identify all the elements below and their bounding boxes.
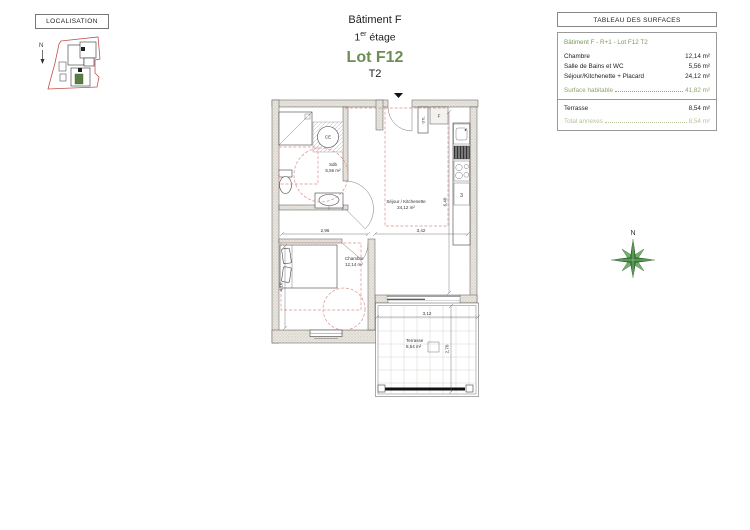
room-label-sejour: Séjour / Kitchenette (386, 199, 426, 204)
table-row: Salle de Bains et WC 5,56 m² (564, 63, 710, 70)
compass-north-label: N (630, 230, 635, 237)
plan-sheet: LOCALISATION N Bâtiment F 1er étage Lot … (0, 0, 750, 530)
railing-post (378, 385, 385, 392)
table-row-total-annexes: Total annexes 8,54 m² (564, 118, 710, 125)
chambre: Chambre 12,14 m² (280, 243, 365, 339)
railing-post (466, 385, 473, 392)
surface-table-title: TABLEAU DES SURFACES (557, 12, 717, 27)
room-label-terrasse: Terrasse (406, 338, 424, 343)
building-core (81, 47, 85, 51)
map-north-label: N (39, 43, 43, 49)
type-title: T2 (275, 68, 475, 80)
surface-table: Bâtiment F - R+1 - Lot F12 T2 Chambre 12… (557, 32, 717, 131)
room-area-sejour: 24,12 m² (397, 205, 415, 210)
building-title: Bâtiment F (275, 14, 475, 26)
dotted-leader (615, 91, 683, 92)
localisation-title: LOCALISATION (35, 14, 109, 29)
room-area-chambre: 12,14 m² (345, 262, 363, 267)
dim-terrasse-width: 3,12 (423, 311, 432, 316)
dotted-leader (605, 122, 687, 123)
table-row: Terrasse 8,54 m² (564, 105, 710, 112)
kitchen-counter (453, 123, 470, 245)
room-label-chambre: Chambre (345, 256, 364, 261)
compass-rose: N (609, 226, 657, 284)
highlighted-lot (75, 74, 83, 84)
building-outline (84, 58, 94, 66)
kitchen-placard-zone (385, 108, 448, 226)
building-core (78, 68, 82, 72)
dim-chambre-height: 4,10 (279, 282, 284, 291)
map-north-arrowhead (41, 59, 45, 64)
room-area-sdb: 5,56 m² (325, 168, 341, 173)
floor-plan: CE Sdb 5,56 m² GTL F (270, 90, 490, 400)
gtl-label: GTL (422, 117, 426, 124)
dim-sejour-height: 6,40 (443, 197, 448, 206)
table-row: Séjour/Kitchenette + Placard 24,12 m² (564, 73, 710, 80)
bathroom-door-swing (346, 181, 374, 229)
building-outline (60, 74, 66, 81)
sliding-door-icon (387, 295, 460, 301)
room-label-sdb: Sdb (329, 162, 338, 167)
kitchenette: 3 (453, 123, 470, 245)
table-row-habitable: Surface habitable 41,82 m² (564, 87, 710, 94)
washbasin-icon (319, 195, 339, 206)
dim-terrasse-height: 2,70 (445, 344, 450, 353)
dim-sejour-width: 3,42 (417, 228, 426, 233)
fridge-mark: 3 (460, 193, 463, 199)
title-block: Bâtiment F 1er étage Lot F12 T2 (275, 14, 475, 80)
table-divider (558, 99, 716, 100)
pillow-icon (281, 248, 291, 264)
entrance-door-swing (388, 107, 412, 131)
entrance-marker-icon (394, 93, 403, 98)
floor-title: 1er étage (275, 31, 475, 44)
f-label: F (438, 114, 441, 119)
lot-title: Lot F12 (275, 49, 475, 67)
bathroom: CE Sdb 5,56 m² (279, 112, 348, 210)
table-row: Chambre 12,14 m² (564, 53, 710, 60)
toilet-tank-icon (279, 170, 292, 177)
dim-chambre-width: 2,96 (321, 228, 330, 233)
site-map: N (34, 33, 106, 97)
room-area-terrasse: 8,54 m² (406, 344, 422, 349)
building-outline (59, 62, 66, 71)
toilet-icon (280, 177, 292, 194)
water-heater-label: CE (325, 135, 331, 140)
turning-circle (323, 288, 365, 330)
pillow-icon (281, 267, 291, 283)
bathroom-door-leaf (346, 209, 366, 229)
surface-table-header: Bâtiment F - R+1 - Lot F12 T2 (564, 39, 710, 46)
drainer-icon (454, 146, 470, 159)
